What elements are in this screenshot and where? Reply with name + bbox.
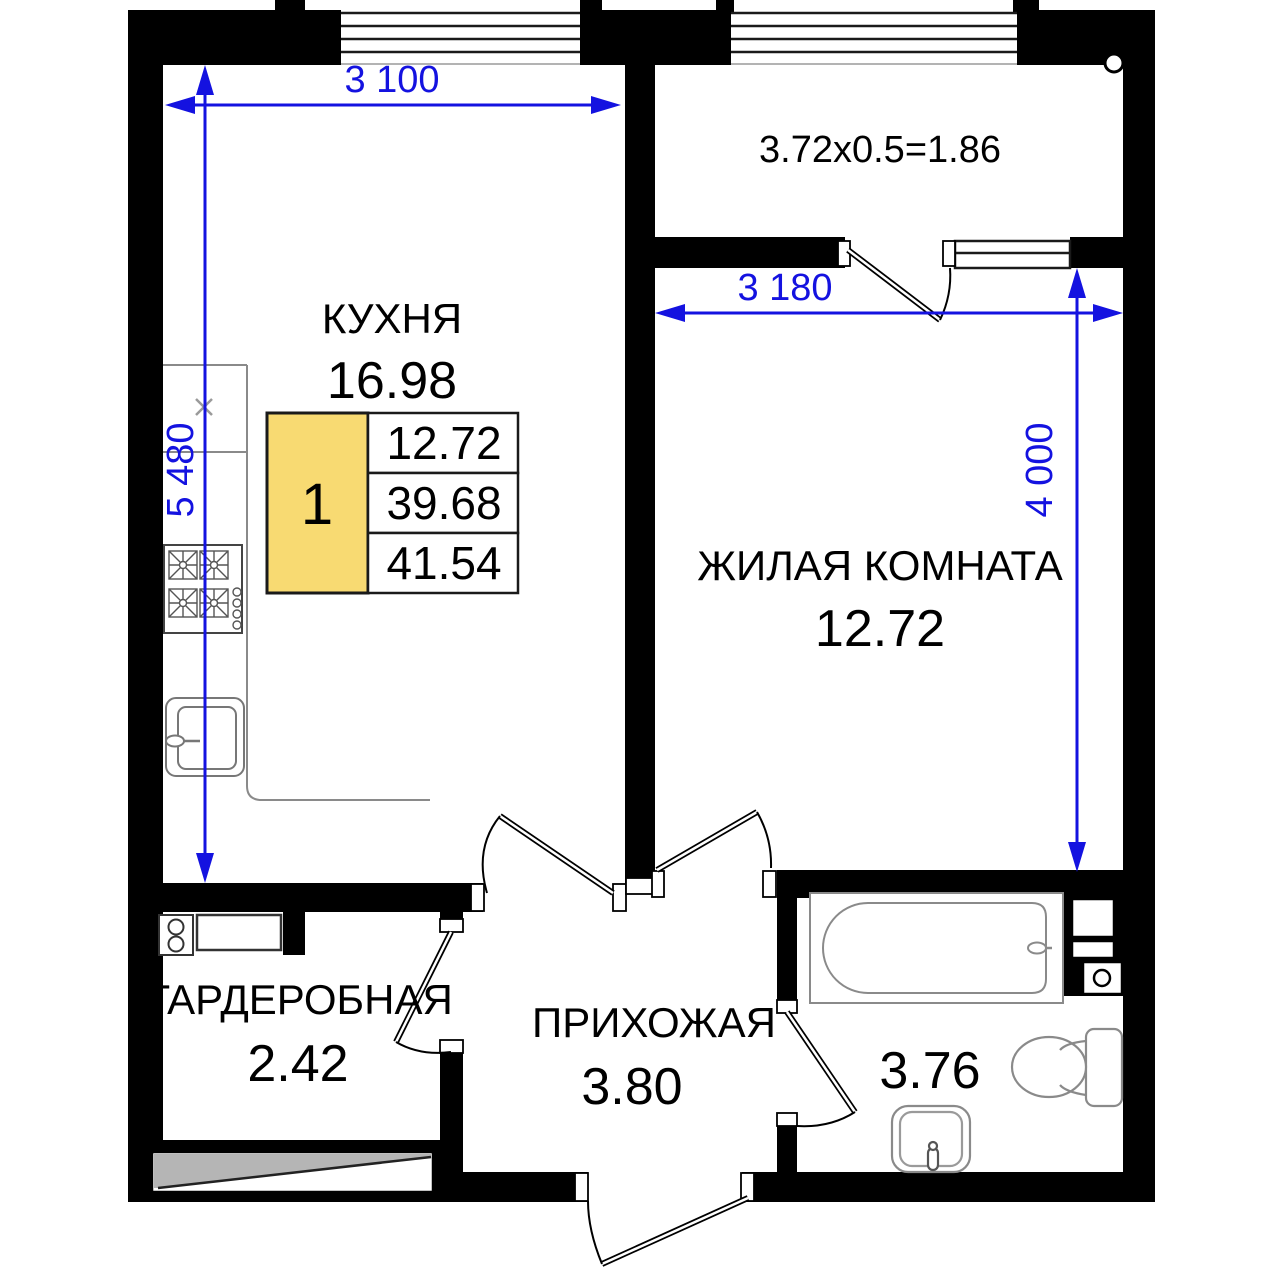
kitchen-label: КУХНЯ bbox=[322, 295, 462, 342]
bathroom-door bbox=[787, 1012, 855, 1126]
kitchen-door bbox=[483, 816, 613, 893]
shaft-niche-1 bbox=[1072, 899, 1114, 937]
window-living-balcony bbox=[955, 241, 1070, 268]
wall-pilaster-2 bbox=[580, 0, 602, 12]
shaft-drain-icon bbox=[1094, 970, 1110, 986]
balcony-drain-icon bbox=[1105, 54, 1123, 72]
legend-value-1: 12.72 bbox=[386, 417, 501, 469]
living-room-door bbox=[657, 812, 771, 870]
hallway-area: 3.80 bbox=[581, 1058, 682, 1116]
window-kitchen bbox=[341, 13, 580, 64]
living-room-area: 12.72 bbox=[815, 600, 945, 658]
wardrobe-shoe-rack bbox=[159, 915, 193, 955]
legend-value-3: 41.54 bbox=[386, 537, 501, 589]
wall-bathroom-left-lower bbox=[777, 1126, 797, 1172]
shaft-niche-2 bbox=[1072, 941, 1114, 958]
wall-bottom-right bbox=[742, 1172, 1155, 1202]
wall-pilaster-4 bbox=[1013, 0, 1039, 12]
wall-right bbox=[1123, 10, 1155, 1202]
dim-living-width-label: 3 180 bbox=[737, 267, 832, 309]
wall-wardrobe-stub bbox=[283, 912, 305, 955]
legend-value-2: 39.68 bbox=[386, 477, 501, 529]
bathroom-sink bbox=[892, 1106, 970, 1172]
dim-top-width-label: 3 100 bbox=[344, 59, 439, 101]
wall-left bbox=[128, 10, 163, 1202]
floor-plan-page: 3 100 5 480 3 180 4 000 3.72x0.5=1.86 КУ… bbox=[0, 0, 1280, 1280]
wardrobe-niche bbox=[152, 1152, 433, 1192]
hallway-label: ПРИХОЖАЯ bbox=[532, 999, 776, 1046]
sink-tap-icon bbox=[928, 1142, 938, 1170]
wall-kitchen-living-divider bbox=[625, 10, 655, 890]
dim-living-height-label: 4 000 bbox=[1019, 422, 1061, 517]
bathtub bbox=[810, 893, 1063, 1003]
wall-pilaster-3 bbox=[716, 0, 734, 12]
wardrobe-area: 2.42 bbox=[247, 1035, 348, 1093]
wall-bathroom-left-upper bbox=[777, 870, 797, 1012]
wardrobe-shelf bbox=[197, 915, 281, 950]
living-room-label: ЖИЛАЯ КОМНАТА bbox=[697, 542, 1063, 589]
legend-unit-number: 1 bbox=[301, 472, 333, 537]
floor-plan: 3 100 5 480 3 180 4 000 3.72x0.5=1.86 КУ… bbox=[0, 0, 1280, 1280]
door-jambs bbox=[440, 241, 955, 1201]
balcony-formula: 3.72x0.5=1.86 bbox=[759, 129, 1001, 171]
wall-top-kitchen-left bbox=[128, 10, 341, 65]
window-balcony bbox=[731, 13, 1017, 64]
legend-table: 1 12.72 39.68 41.54 bbox=[267, 413, 518, 593]
balcony-door bbox=[848, 250, 950, 320]
wardrobe-label: ГАРДЕРОБНАЯ bbox=[147, 976, 453, 1023]
bathroom-area: 3.76 bbox=[879, 1042, 980, 1100]
dim-living-height-arrow bbox=[1068, 268, 1086, 872]
wall-bottom-hall-left bbox=[440, 1172, 588, 1202]
wall-balcony-partition-right bbox=[1070, 237, 1123, 268]
toilet bbox=[1012, 1029, 1122, 1106]
dim-left-height-label: 5 480 bbox=[160, 422, 202, 517]
entrance-door bbox=[588, 1198, 748, 1264]
wall-pilaster-1 bbox=[275, 0, 305, 12]
wall-top-balcony-left bbox=[655, 10, 731, 65]
wall-kitchen-bottom bbox=[163, 883, 483, 912]
wall-balcony-partition-left bbox=[625, 237, 845, 268]
kitchen-area: 16.98 bbox=[327, 352, 457, 410]
stove bbox=[164, 545, 242, 633]
dim-living-width-arrow bbox=[655, 304, 1123, 322]
